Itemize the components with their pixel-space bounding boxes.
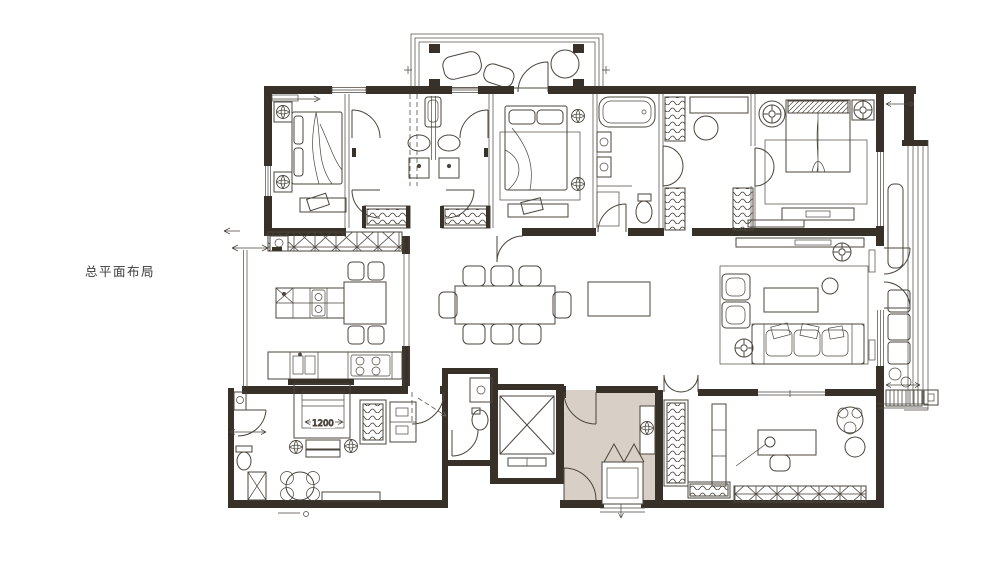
- floor-plan-page: 总平面布局: [0, 0, 1000, 562]
- ceiling-light-icon: [345, 440, 358, 453]
- bench: [888, 184, 903, 268]
- desk: [758, 430, 816, 455]
- dresser: [748, 220, 804, 227]
- wardrobe: [667, 403, 685, 483]
- toilet-tank: [236, 446, 252, 452]
- round-table: [281, 472, 320, 501]
- dining-table: [455, 286, 555, 324]
- kitchen: [224, 228, 402, 379]
- twin-bathrooms: [352, 97, 488, 178]
- floor-lamp: [822, 278, 838, 294]
- ottoman: [694, 116, 718, 140]
- closet-right-doors: [755, 148, 774, 186]
- balcony-round-table: [551, 50, 579, 78]
- study-sliding-door: [758, 390, 825, 397]
- closet-left-doors: [663, 146, 683, 186]
- powder-door: [452, 430, 478, 456]
- top-balcony: [404, 34, 610, 92]
- shower: [425, 97, 441, 127]
- balcony-lounge-stones: [441, 50, 516, 89]
- wardrobe: [733, 188, 753, 230]
- ceiling-light-icon: [277, 106, 290, 119]
- desk-chair: [770, 455, 790, 471]
- chair: [553, 292, 571, 318]
- wardrobe: [665, 97, 685, 141]
- bath-b-door: [460, 110, 488, 138]
- wardrobe: [665, 188, 685, 230]
- sofa: [752, 323, 864, 364]
- coffee-table: [764, 288, 818, 312]
- toilet: [237, 452, 251, 470]
- bookshelf: [734, 486, 866, 502]
- bench: [782, 208, 854, 220]
- closet-double-door: [664, 375, 698, 392]
- bed: [505, 106, 567, 190]
- vanity: [597, 132, 611, 152]
- floor-plan-drawing: 1200: [0, 0, 1000, 562]
- ceiling-light-icon: [572, 178, 585, 191]
- vanity: [470, 378, 492, 402]
- master-bedroom: [748, 100, 874, 227]
- vanity: [597, 157, 611, 177]
- chair: [519, 324, 541, 344]
- bed-dimension-label: 1200: [312, 419, 334, 429]
- ceiling-light-icon: [290, 441, 303, 454]
- balcony-door: [518, 62, 548, 92]
- shelf: [690, 97, 748, 113]
- chair: [888, 342, 910, 364]
- ceiling-light-icon: [572, 110, 585, 123]
- ceiling-fan-icon: [833, 243, 851, 261]
- left-bathroom: [230, 392, 266, 500]
- bedroom2-door: [497, 236, 523, 262]
- chair: [463, 266, 485, 286]
- sink: [438, 135, 460, 151]
- corridor-wardrobes: [362, 206, 490, 228]
- vanity: [234, 392, 246, 410]
- chair: [491, 266, 513, 286]
- bath-a-door: [352, 110, 380, 138]
- right-balcony: [886, 102, 938, 407]
- elevator: [500, 396, 554, 466]
- study: [734, 407, 866, 502]
- toilet-tank: [638, 194, 651, 201]
- shaft: [248, 472, 266, 500]
- chair: [491, 324, 513, 344]
- breakfast-table: [344, 262, 386, 344]
- desk-lamp: [765, 437, 775, 447]
- chair: [888, 290, 910, 312]
- bedroom-1: [272, 95, 346, 212]
- bedroom3-door: [412, 392, 444, 424]
- tv-console: [736, 238, 864, 247]
- ceiling-light-icon: [277, 176, 290, 189]
- hall-closet: [664, 400, 730, 498]
- armchair: [722, 302, 750, 328]
- master-bath-door: [598, 204, 626, 232]
- ac-unit: [886, 390, 922, 406]
- walk-in-closet: [665, 97, 753, 230]
- shelf-column: [712, 404, 726, 486]
- chair: [519, 266, 541, 286]
- living-room: [720, 238, 868, 364]
- bedroom-2: [500, 106, 585, 217]
- chair: [463, 324, 485, 344]
- dimension-arrow: [224, 228, 268, 251]
- dining-room: [439, 266, 650, 344]
- office-chair: [837, 407, 863, 434]
- stool: [845, 437, 865, 457]
- toilet: [636, 201, 652, 223]
- armchair: [722, 274, 750, 300]
- wardrobe: [360, 400, 416, 444]
- bench: [306, 440, 340, 449]
- bedroom-3: 1200: [278, 379, 446, 517]
- chair: [439, 292, 457, 318]
- threshold: [600, 504, 645, 518]
- low-cabinet: [322, 492, 380, 501]
- island: [276, 288, 344, 318]
- ceiling-fan-icon: [735, 339, 753, 357]
- chair: [888, 314, 910, 340]
- ceiling-light-icon: [854, 101, 872, 119]
- sideboard: [588, 282, 650, 316]
- ceiling-fan-icon: [763, 105, 781, 123]
- powder-room: [470, 378, 492, 430]
- sink: [408, 135, 430, 151]
- counter: [268, 352, 402, 379]
